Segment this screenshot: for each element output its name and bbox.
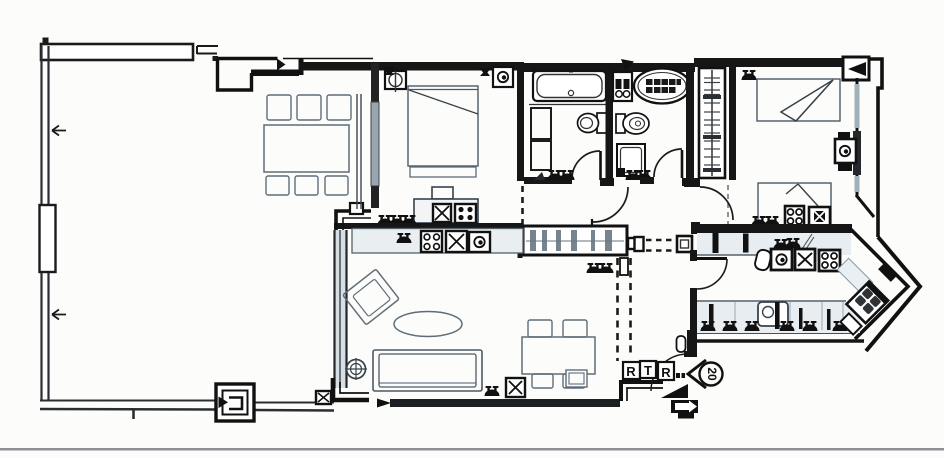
svg-text:R: R (626, 364, 636, 379)
svg-text:T: T (644, 363, 652, 378)
svg-text:R: R (661, 365, 671, 380)
svg-text:20: 20 (705, 367, 719, 381)
